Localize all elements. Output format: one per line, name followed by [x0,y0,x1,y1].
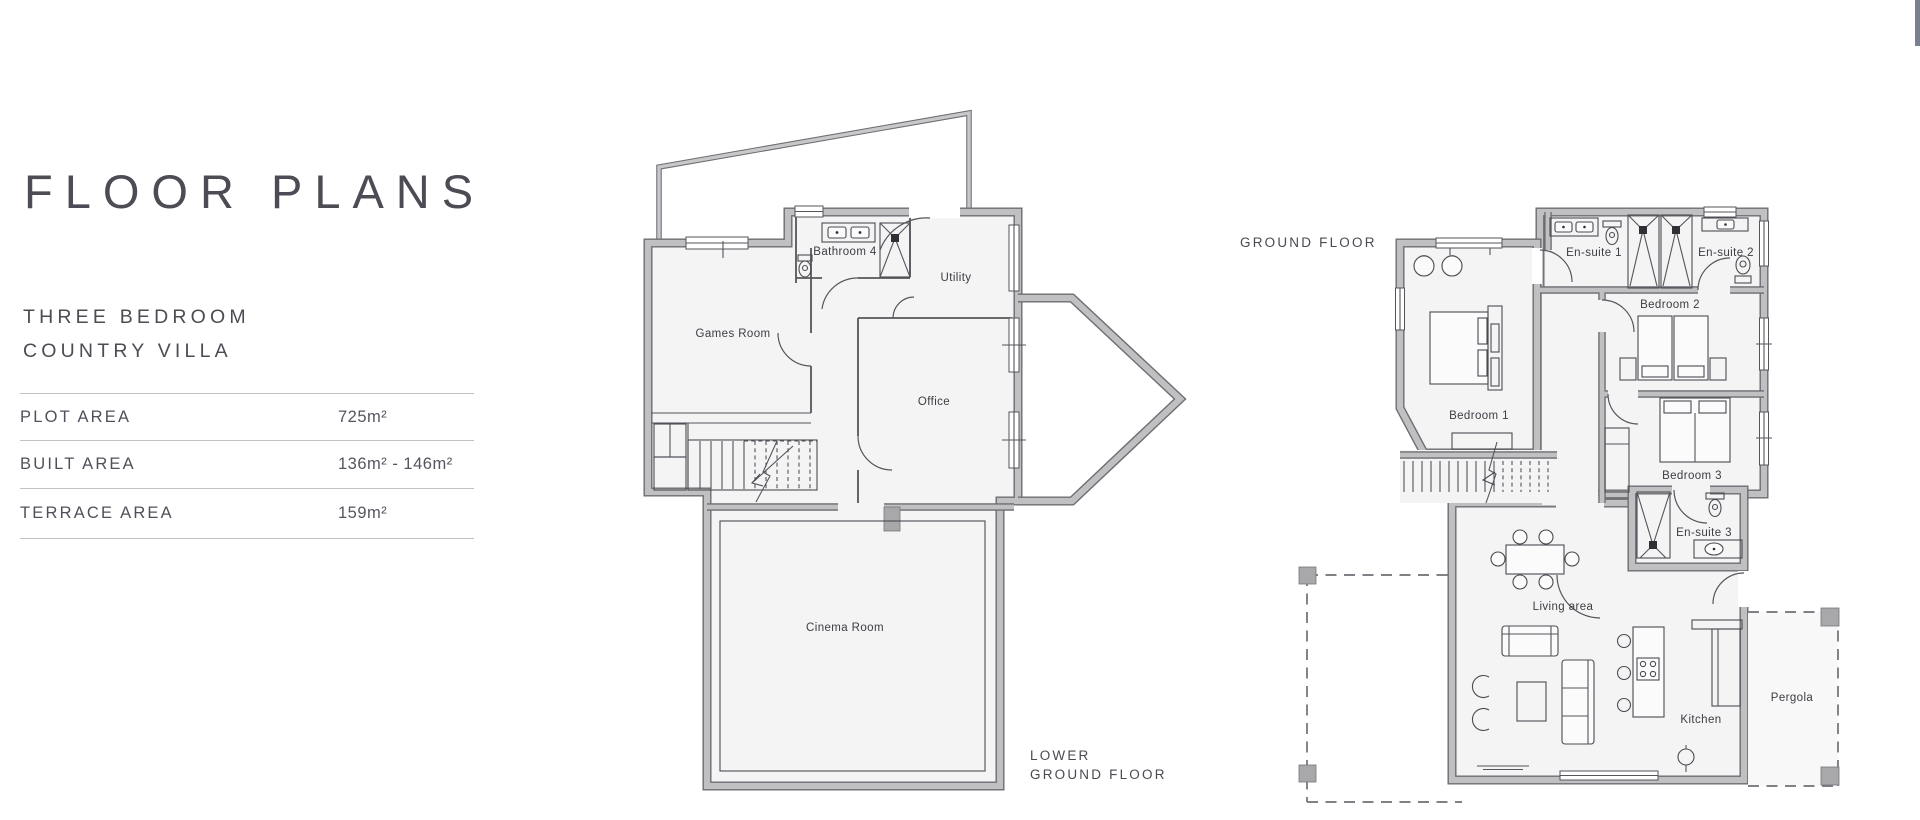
property-subtitle: THREE BEDROOM COUNTRY VILLA [23,300,250,368]
lower-floor-caption: LOWER GROUND FLOOR [1030,748,1167,782]
dining-chair [1513,575,1527,589]
ground-floor-caption: GROUND FLOOR [1240,235,1377,250]
caption-line-2: GROUND FLOOR [1030,767,1167,782]
room-label-bedroom-1: Bedroom 1 [1449,410,1509,422]
room-label-office: Office [918,396,950,408]
table-row: PLOT AREA 725m² [20,393,474,440]
sofa [1502,626,1558,656]
room-label-kitchen: Kitchen [1680,714,1721,726]
floor-plans-page: { "page": {"background": "#ffffff"}, "in… [0,0,1920,820]
page-corner-accent [1915,0,1920,46]
table-row: BUILT AREA 136m² - 146m² [20,440,474,488]
spec-value: 159m² [338,504,387,523]
ground-terrace-dashed [1299,567,1462,802]
room-label-en-suite-3: En-suite 3 [1676,527,1732,539]
room-label-en-suite-2: En-suite 2 [1698,247,1754,259]
room-label-bathroom-4: Bathroom 4 [813,246,877,258]
terrace-post [1299,765,1316,782]
page-title: FLOOR PLANS [24,164,485,219]
sofa [1562,660,1594,744]
caption-line-1: LOWER [1030,748,1091,763]
bed [1674,316,1708,380]
chair [1414,256,1434,276]
room-label-utility: Utility [941,272,972,284]
spec-label: BUILT AREA [20,455,338,474]
chair [1442,256,1462,276]
table-row: TERRACE AREA 159m² [20,488,474,539]
room-label-living-area: Living area [1533,601,1594,613]
room-label-pergola: Pergola [1771,692,1814,704]
wall-stub [884,507,900,531]
pergola-post [1821,767,1839,785]
room-label-bedroom-3: Bedroom 3 [1662,470,1722,482]
spec-value: 725m² [338,408,387,427]
dining-chair [1539,530,1553,544]
ground-staircase [1400,442,1558,503]
ground-floor-plan: GROUND FLOOR [1225,195,1890,820]
lower-bay-terrace [1018,298,1180,501]
lower-ground-floor-plan: Games Room Bathroom 4 Utility Office Cin… [630,85,1210,800]
room-label-en-suite-1: En-suite 1 [1566,247,1622,259]
bed [1638,316,1672,380]
dining-chair [1491,552,1505,566]
pergola-post [1821,608,1839,626]
area-specs-table: PLOT AREA 725m² BUILT AREA 136m² - 146m²… [20,393,474,539]
room-label-cinema-room: Cinema Room [806,622,884,634]
spec-label: TERRACE AREA [20,504,338,523]
subtitle-line-2: COUNTRY VILLA [23,334,250,368]
lower-building-walls [648,212,1018,786]
dining-chair [1539,575,1553,589]
subtitle-line-1: THREE BEDROOM [23,300,250,334]
room-label-bedroom-2: Bedroom 2 [1640,299,1700,311]
spec-value: 136m² - 146m² [338,455,453,474]
dining-chair [1513,530,1527,544]
spec-label: PLOT AREA [20,408,338,427]
dining-table [1506,545,1564,574]
terrace-post [1299,567,1316,584]
room-label-games-room: Games Room [696,328,771,340]
bed [1430,312,1488,384]
dining-chair [1565,552,1579,566]
